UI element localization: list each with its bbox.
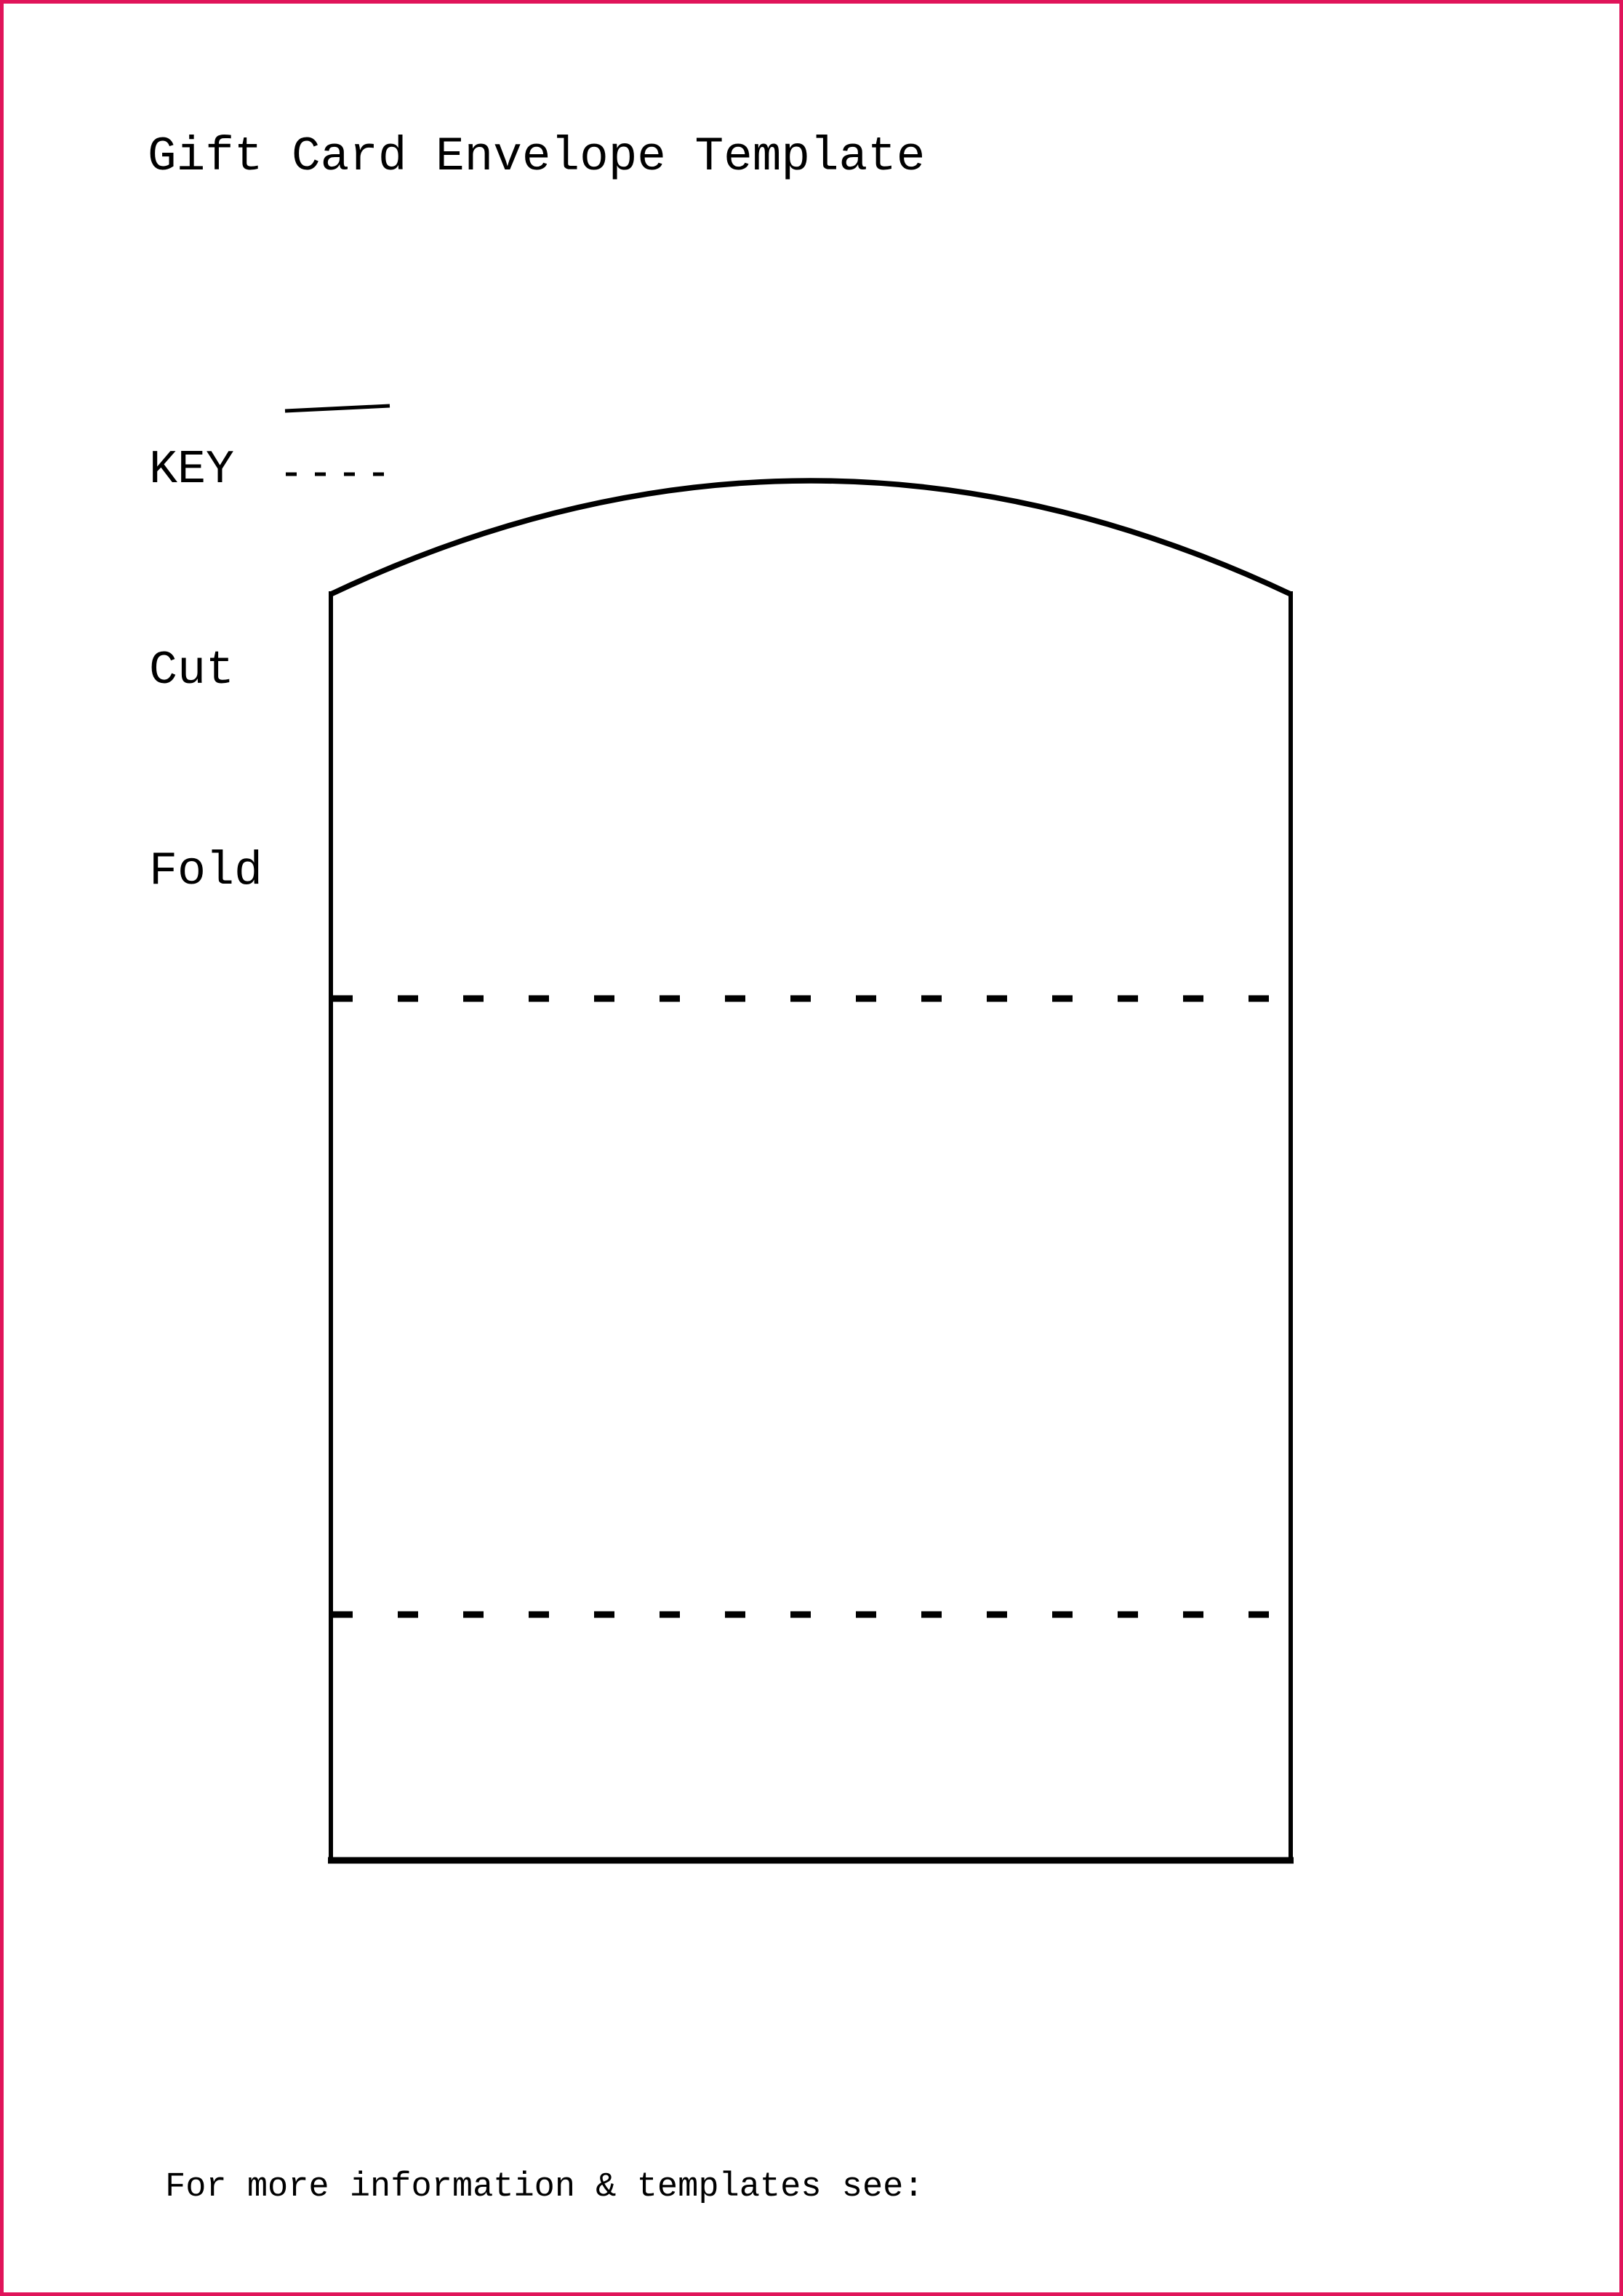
footer-info-text: For more information & templates see: xyxy=(165,2165,1067,2210)
document-page: Gift Card Envelope Template KEY Cut Fold… xyxy=(0,0,1623,2296)
footer: For more information & templates see: ht… xyxy=(165,2075,1067,2296)
envelope-outline-top-curve xyxy=(331,481,1291,594)
key-cut-sample-line xyxy=(285,406,390,411)
envelope-template-drawing xyxy=(4,4,1623,2296)
envelope-outline-sides xyxy=(331,591,1291,1860)
